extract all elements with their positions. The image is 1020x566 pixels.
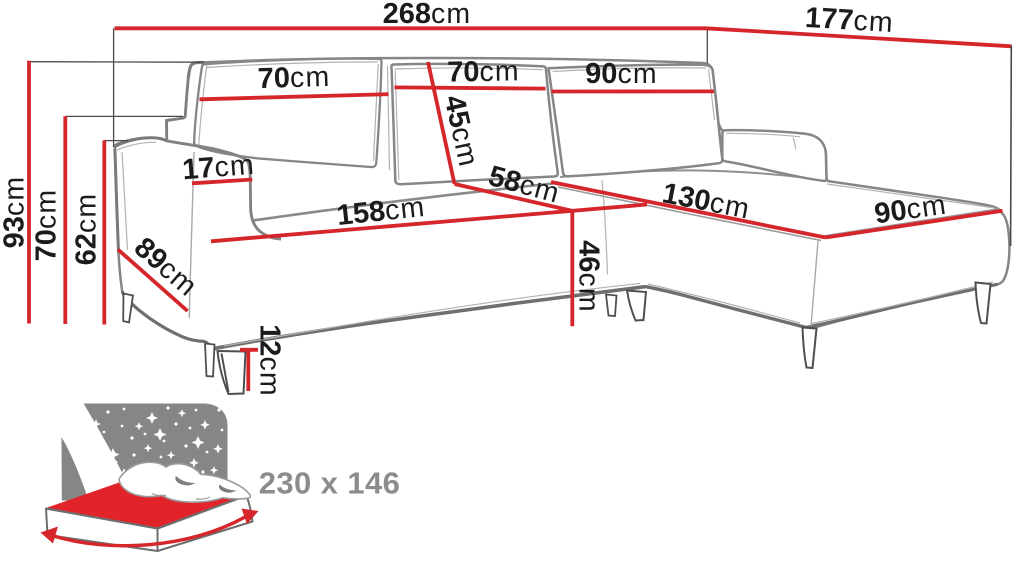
svg-text:90cm: 90cm — [585, 58, 658, 90]
svg-text:12cm: 12cm — [254, 324, 286, 397]
svg-text:17cm: 17cm — [181, 149, 256, 187]
svg-text:70cm: 70cm — [257, 61, 331, 95]
svg-text:177cm: 177cm — [804, 2, 895, 39]
svg-text:70cm: 70cm — [31, 189, 63, 262]
svg-text:70cm: 70cm — [447, 55, 520, 88]
svg-text:46cm: 46cm — [573, 240, 605, 313]
svg-text:62cm: 62cm — [71, 193, 103, 266]
svg-text:268cm: 268cm — [383, 0, 472, 30]
svg-text:230 x 146: 230 x 146 — [259, 466, 401, 501]
svg-text:93cm: 93cm — [0, 176, 31, 249]
